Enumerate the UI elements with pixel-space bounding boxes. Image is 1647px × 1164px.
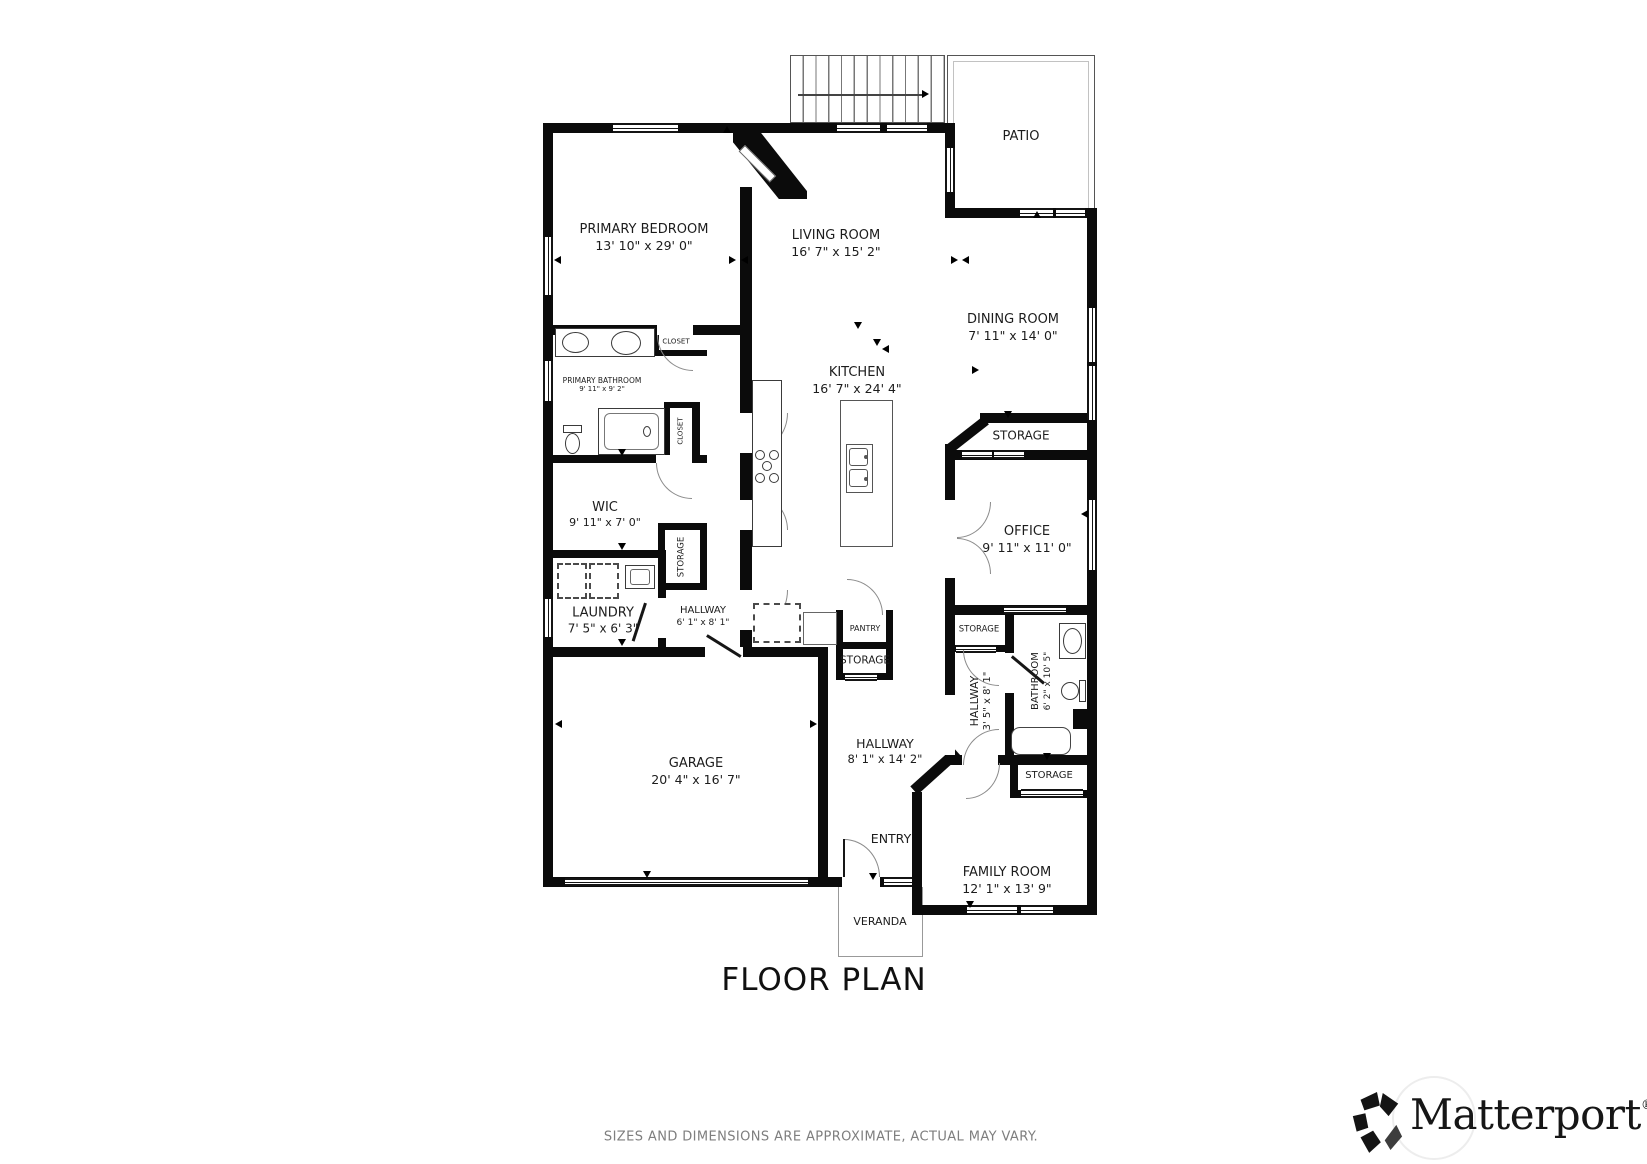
- garage-door-cap: [558, 878, 565, 886]
- burner-icon: [755, 450, 765, 460]
- room-name: FAMILY ROOM: [962, 865, 1051, 881]
- faucet-icon: [864, 455, 868, 459]
- matterport-icon: [1347, 1086, 1405, 1156]
- door-arc: [963, 729, 999, 765]
- room-dims: 12' 1" x 13' 9": [962, 881, 1051, 897]
- direction-marker: [1081, 510, 1088, 518]
- room-name: HALLWAY: [848, 736, 923, 752]
- laundry-sink-basin: [630, 569, 650, 585]
- door-leaf: [843, 839, 845, 877]
- window: [887, 123, 927, 133]
- direction-marker: [966, 901, 974, 908]
- room-name: PRIMARY BATHROOM: [563, 376, 642, 385]
- room-name: LAUNDRY: [568, 605, 639, 621]
- sliding-door: [1021, 789, 1083, 798]
- dryer-icon: [589, 563, 619, 599]
- room-label-hallway-bath: HALLWAY 3' 5" x 8' 1": [968, 672, 994, 731]
- door-arc: [656, 463, 692, 499]
- sliding-door: [962, 450, 992, 459]
- direction-marker: [1043, 753, 1051, 760]
- room-dims: 9' 11" x 7' 0": [569, 516, 641, 530]
- door-opening: [945, 695, 955, 755]
- room-dims: 9' 11" x 11' 0": [982, 540, 1071, 556]
- room-name: CLOSET: [677, 417, 686, 444]
- disclaimer-text: SIZES AND DIMENSIONS ARE APPROXIMATE, AC…: [604, 1130, 1038, 1145]
- direction-marker: [741, 256, 748, 264]
- stairs: [790, 55, 945, 123]
- room-name: STORAGE: [677, 537, 688, 577]
- direction-marker: [962, 256, 969, 264]
- door-opening: [658, 598, 666, 638]
- toilet-tank: [563, 425, 582, 433]
- room-label-laundry: LAUNDRY 7' 5" x 6' 3": [568, 605, 639, 636]
- wall-segment: [912, 792, 922, 915]
- room-label-kitchen: KITCHEN 16' 7" x 24' 4": [812, 365, 901, 397]
- room-label-family-room: FAMILY ROOM 12' 1" x 13' 9": [962, 865, 1051, 897]
- room-name: STORAGE: [992, 429, 1049, 444]
- window: [1087, 500, 1097, 570]
- door-opening: [657, 325, 693, 335]
- room-dims: 8' 1" x 14' 2": [848, 752, 923, 766]
- door-opening: [740, 590, 752, 630]
- refrigerator-icon: [753, 603, 801, 643]
- burner-icon: [769, 473, 779, 483]
- door-arc: [847, 579, 883, 615]
- room-dims: 16' 7" x 24' 4": [812, 381, 901, 397]
- direction-marker: [723, 126, 731, 133]
- burner-icon: [769, 450, 779, 460]
- room-dims: 3' 5" x 8' 1": [982, 672, 995, 731]
- room-name: PANTRY: [850, 624, 881, 634]
- window: [837, 123, 880, 133]
- direction-marker: [618, 639, 626, 646]
- room-label-hallway-main: HALLWAY 8' 1" x 14' 2": [848, 736, 923, 766]
- direction-marker: [555, 720, 562, 728]
- room-dims: 9' 11" x 9' 2": [563, 385, 642, 394]
- room-label-storage-family: STORAGE: [1025, 770, 1073, 783]
- bathtub-icon: [1011, 727, 1071, 755]
- room-name: PRIMARY BEDROOM: [580, 222, 709, 238]
- sink-icon: [562, 332, 589, 353]
- direction-marker: [854, 322, 862, 329]
- room-label-storage-pantry: STORAGE: [840, 654, 890, 667]
- toilet-icon: [1061, 682, 1079, 700]
- room-label-entry: ENTRY: [871, 831, 911, 847]
- room-label-wic: WIC 9' 11" x 7' 0": [569, 500, 641, 530]
- washer-icon: [557, 563, 587, 599]
- burner-icon: [755, 473, 765, 483]
- room-name: HALLWAY: [677, 605, 730, 618]
- wall-segment: [836, 642, 893, 649]
- sink-icon: [611, 331, 641, 355]
- direction-marker: [1004, 411, 1012, 418]
- direction-marker: [951, 256, 958, 264]
- room-label-living-room: LIVING ROOM 16' 7" x 15' 2": [791, 228, 880, 260]
- direction-marker: [618, 449, 626, 456]
- room-dims: 13' 10" x 29' 0": [580, 238, 709, 254]
- room-name: ENTRY: [871, 831, 911, 847]
- room-label-primary-bathroom: PRIMARY BATHROOM 9' 11" x 9' 2": [563, 376, 642, 394]
- window: [884, 877, 912, 887]
- room-label-storage-wic: STORAGE: [677, 537, 688, 577]
- direction-marker: [1033, 211, 1041, 218]
- room-label-office: OFFICE 9' 11" x 11' 0": [982, 524, 1071, 556]
- room-name: PATIO: [1003, 129, 1040, 145]
- shower-drain: [643, 426, 651, 437]
- room-name: STORAGE: [840, 654, 890, 667]
- direction-marker: [810, 720, 817, 728]
- room-label-closet-2: CLOSET: [677, 417, 686, 444]
- room-name: GARAGE: [651, 756, 740, 772]
- wall-segment: [543, 647, 828, 657]
- room-name: CLOSET: [662, 338, 689, 347]
- window: [967, 905, 1017, 915]
- sliding-door: [1056, 208, 1085, 218]
- sink-icon: [1063, 628, 1082, 654]
- room-name: LIVING ROOM: [791, 228, 880, 244]
- direction-marker: [618, 543, 626, 550]
- wall-segment: [1073, 709, 1087, 729]
- matterport-wordmark: Matterport®: [1410, 1090, 1647, 1139]
- direction-marker: [869, 873, 877, 880]
- room-name: DINING ROOM: [967, 312, 1059, 328]
- room-dims: 6' 2" x 10' 5": [1043, 652, 1054, 711]
- room-dims: 16' 7" x 15' 2": [791, 244, 880, 260]
- sliding-door: [1004, 606, 1066, 614]
- wall-segment: [980, 413, 1097, 423]
- window: [945, 148, 955, 192]
- room-dims: 7' 5" x 6' 3": [568, 622, 639, 637]
- room-dims: 7' 11" x 14' 0": [967, 328, 1059, 344]
- door-opening: [740, 500, 752, 530]
- room-dims: 6' 1" x 8' 1": [677, 618, 730, 629]
- stairs-arrow-icon: [922, 90, 929, 98]
- stairs-direction-line: [798, 94, 922, 96]
- room-name: BATHROOM: [1030, 652, 1043, 711]
- door-opening: [945, 500, 955, 578]
- brand-name: Matterport: [1410, 1090, 1641, 1139]
- window: [543, 599, 553, 637]
- floor-plan: PRIMARY BEDROOM 13' 10" x 29' 0" LIVING …: [515, 45, 1105, 925]
- door-opening: [740, 413, 752, 453]
- room-name: KITCHEN: [812, 365, 901, 381]
- direction-marker: [972, 366, 979, 374]
- direction-marker: [554, 256, 561, 264]
- wall-segment: [692, 402, 700, 458]
- room-name: OFFICE: [982, 524, 1071, 540]
- sliding-door: [845, 673, 877, 681]
- wall-segment: [658, 523, 665, 590]
- wall-segment: [543, 550, 658, 558]
- room-dims: 20' 4" x 16' 7": [651, 772, 740, 788]
- direction-marker: [729, 256, 736, 264]
- window: [1087, 308, 1097, 362]
- room-label-bathroom: BATHROOM 6' 2" x 10' 5": [1030, 652, 1054, 711]
- room-label-primary-bedroom: PRIMARY BEDROOM 13' 10" x 29' 0": [580, 222, 709, 254]
- room-label-patio: PATIO: [1003, 129, 1040, 145]
- room-label-storage-dining: STORAGE: [992, 429, 1049, 444]
- direction-marker: [882, 345, 889, 353]
- window: [613, 123, 678, 133]
- direction-marker: [643, 871, 651, 878]
- cabinet: [803, 612, 837, 645]
- room-name: STORAGE: [1025, 770, 1073, 783]
- sliding-door: [994, 450, 1024, 459]
- toilet-icon: [565, 433, 580, 454]
- room-label-pantry: PANTRY: [850, 624, 881, 634]
- room-label-closet: CLOSET: [662, 338, 689, 347]
- room-name: WIC: [569, 500, 641, 516]
- room-label-storage-hall: STORAGE: [959, 625, 999, 636]
- room-name: STORAGE: [959, 625, 999, 636]
- registered-mark: ®: [1641, 1098, 1647, 1113]
- room-label-garage: GARAGE 20' 4" x 16' 7": [651, 756, 740, 788]
- direction-marker: [873, 339, 881, 346]
- window: [543, 361, 553, 401]
- window: [1021, 905, 1053, 915]
- room-name: HALLWAY: [968, 672, 982, 731]
- matterport-logo: Matterport®: [1340, 1076, 1640, 1162]
- wall-segment: [658, 583, 707, 590]
- door-arc: [966, 763, 1000, 799]
- room-label-veranda: VERANDA: [853, 915, 906, 929]
- burner-icon: [762, 461, 772, 471]
- faucet-icon: [864, 477, 868, 481]
- window: [1087, 366, 1097, 420]
- garage-door: [560, 878, 812, 886]
- room-name: VERANDA: [853, 915, 906, 929]
- room-label-hallway-small: HALLWAY 6' 1" x 8' 1": [677, 605, 730, 629]
- page-title: FLOOR PLAN: [721, 962, 926, 998]
- window: [543, 237, 553, 295]
- page: { "title": "FLOOR PLAN", "disclaimer": "…: [0, 0, 1647, 1164]
- toilet-tank: [1079, 680, 1086, 702]
- room-label-dining-room: DINING ROOM 7' 11" x 14' 0": [967, 312, 1059, 344]
- wall-segment: [700, 523, 707, 590]
- wall-segment: [818, 647, 828, 887]
- garage-door-cap: [808, 878, 815, 886]
- door-opening: [656, 455, 692, 463]
